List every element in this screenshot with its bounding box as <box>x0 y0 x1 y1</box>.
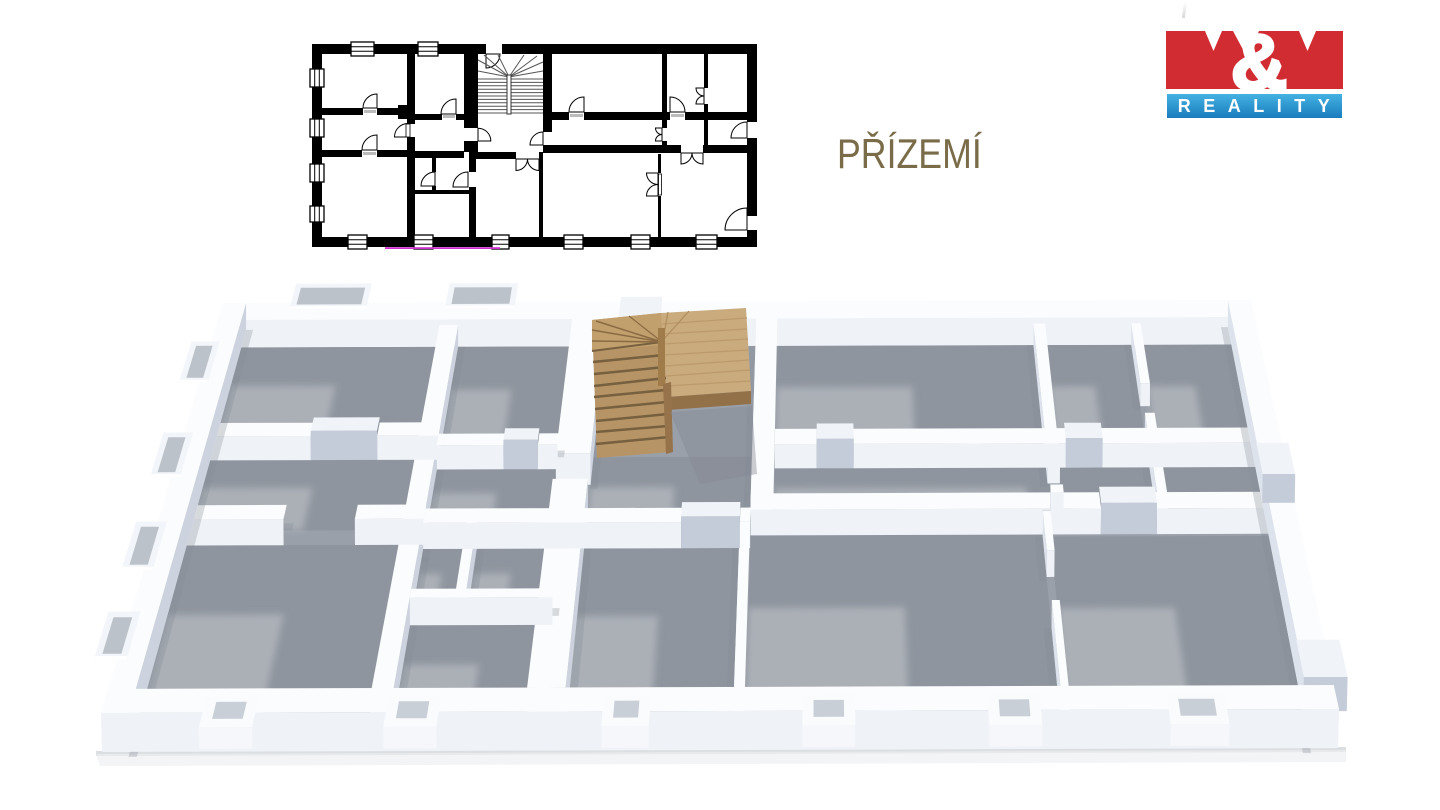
svg-text:REALITY: REALITY <box>1178 96 1343 116</box>
